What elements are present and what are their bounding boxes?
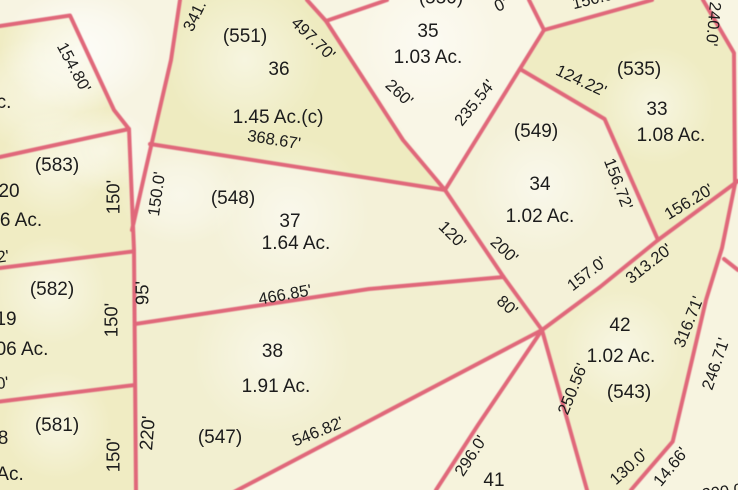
svg-text:150': 150'	[101, 303, 122, 337]
svg-text:1.02 Ac.: 1.02 Ac.	[587, 346, 656, 367]
svg-text:(581): (581)	[35, 415, 79, 436]
svg-text:c.: c.	[0, 92, 11, 113]
svg-text:19: 19	[0, 309, 17, 330]
svg-text:1.45 Ac.(c): 1.45 Ac.(c)	[233, 107, 324, 128]
svg-text:95': 95'	[132, 281, 153, 305]
svg-text:35: 35	[417, 21, 438, 42]
svg-text:38: 38	[262, 341, 283, 362]
svg-text:(548): (548)	[211, 188, 255, 209]
svg-text:37: 37	[279, 211, 300, 232]
svg-text:(547): (547)	[198, 427, 242, 448]
svg-text:1.64 Ac.: 1.64 Ac.	[262, 233, 331, 254]
svg-text:(551): (551)	[223, 26, 267, 47]
svg-text:(550): (550)	[419, 0, 463, 9]
svg-text:1.02 Ac.: 1.02 Ac.	[506, 206, 575, 227]
svg-text:Ac.: Ac.	[0, 464, 24, 485]
svg-text:1.03 Ac.: 1.03 Ac.	[394, 47, 463, 68]
svg-text:42: 42	[609, 315, 630, 336]
svg-text:(582): (582)	[30, 279, 74, 300]
svg-text:33: 33	[646, 99, 667, 120]
svg-text:(535): (535)	[617, 59, 661, 80]
svg-text:1.08 Ac.: 1.08 Ac.	[637, 125, 706, 146]
svg-text:1.91 Ac.: 1.91 Ac.	[242, 376, 311, 397]
svg-text:36: 36	[268, 59, 289, 80]
svg-text:150': 150'	[103, 180, 124, 214]
svg-text:20: 20	[0, 181, 20, 202]
svg-text:(583): (583)	[35, 155, 79, 176]
svg-text:150': 150'	[103, 438, 124, 472]
svg-text:34: 34	[529, 174, 551, 195]
svg-text:(543): (543)	[607, 382, 651, 403]
svg-text:6 Ac.: 6 Ac.	[0, 210, 42, 231]
svg-text:06 Ac.: 06 Ac.	[0, 339, 48, 360]
svg-text:41: 41	[483, 470, 504, 490]
svg-text:220': 220'	[135, 415, 159, 451]
svg-text:8: 8	[0, 428, 8, 449]
svg-text:(549): (549)	[514, 121, 558, 142]
